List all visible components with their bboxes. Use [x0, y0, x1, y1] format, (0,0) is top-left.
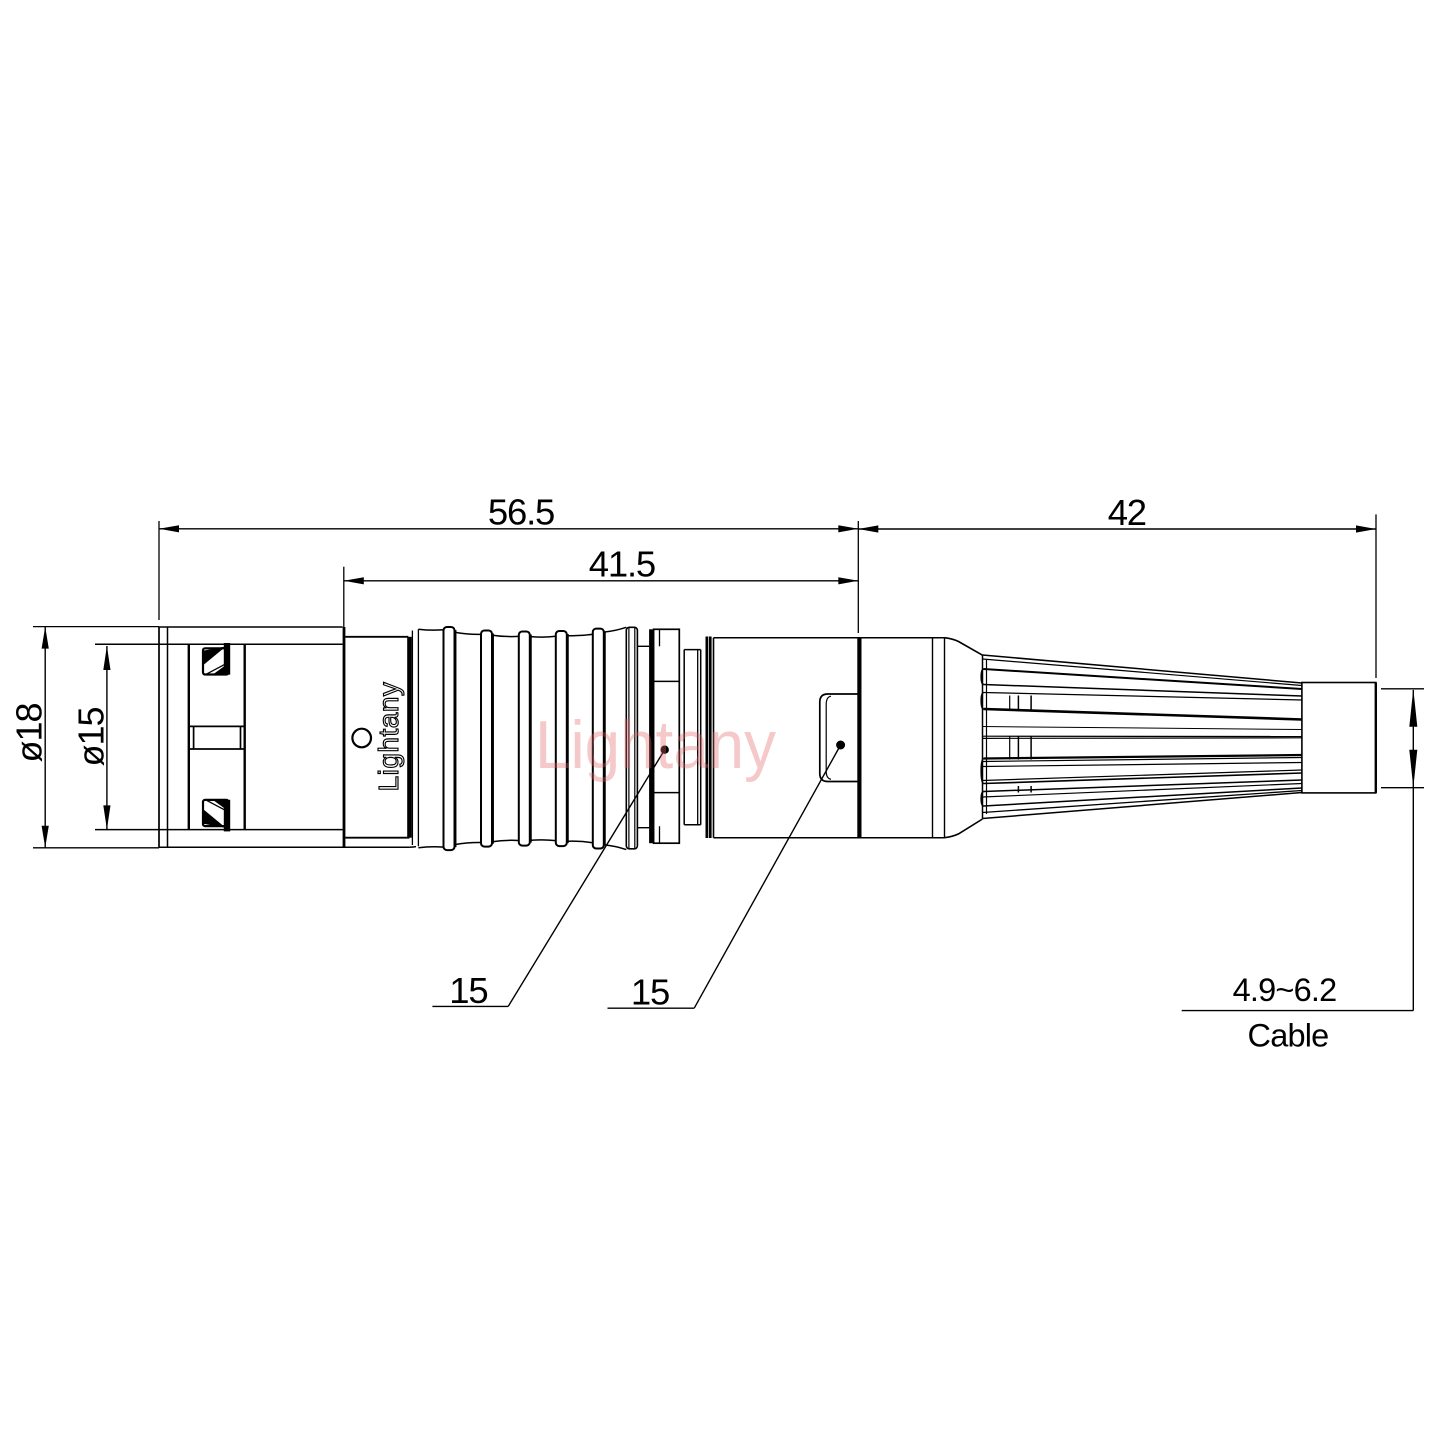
- svg-text:Cable: Cable: [1248, 1018, 1329, 1054]
- svg-text:4.9~6.2: 4.9~6.2: [1233, 972, 1337, 1008]
- svg-text:ø18: ø18: [8, 703, 49, 762]
- svg-text:56.5: 56.5: [488, 491, 554, 532]
- svg-text:15: 15: [631, 972, 669, 1013]
- svg-text:41.5: 41.5: [589, 543, 655, 584]
- svg-text:42: 42: [1108, 492, 1146, 533]
- svg-text:Lightany: Lightany: [373, 682, 404, 792]
- svg-text:15: 15: [449, 970, 487, 1011]
- svg-text:ø15: ø15: [71, 707, 112, 766]
- svg-text:Lightany: Lightany: [535, 707, 776, 783]
